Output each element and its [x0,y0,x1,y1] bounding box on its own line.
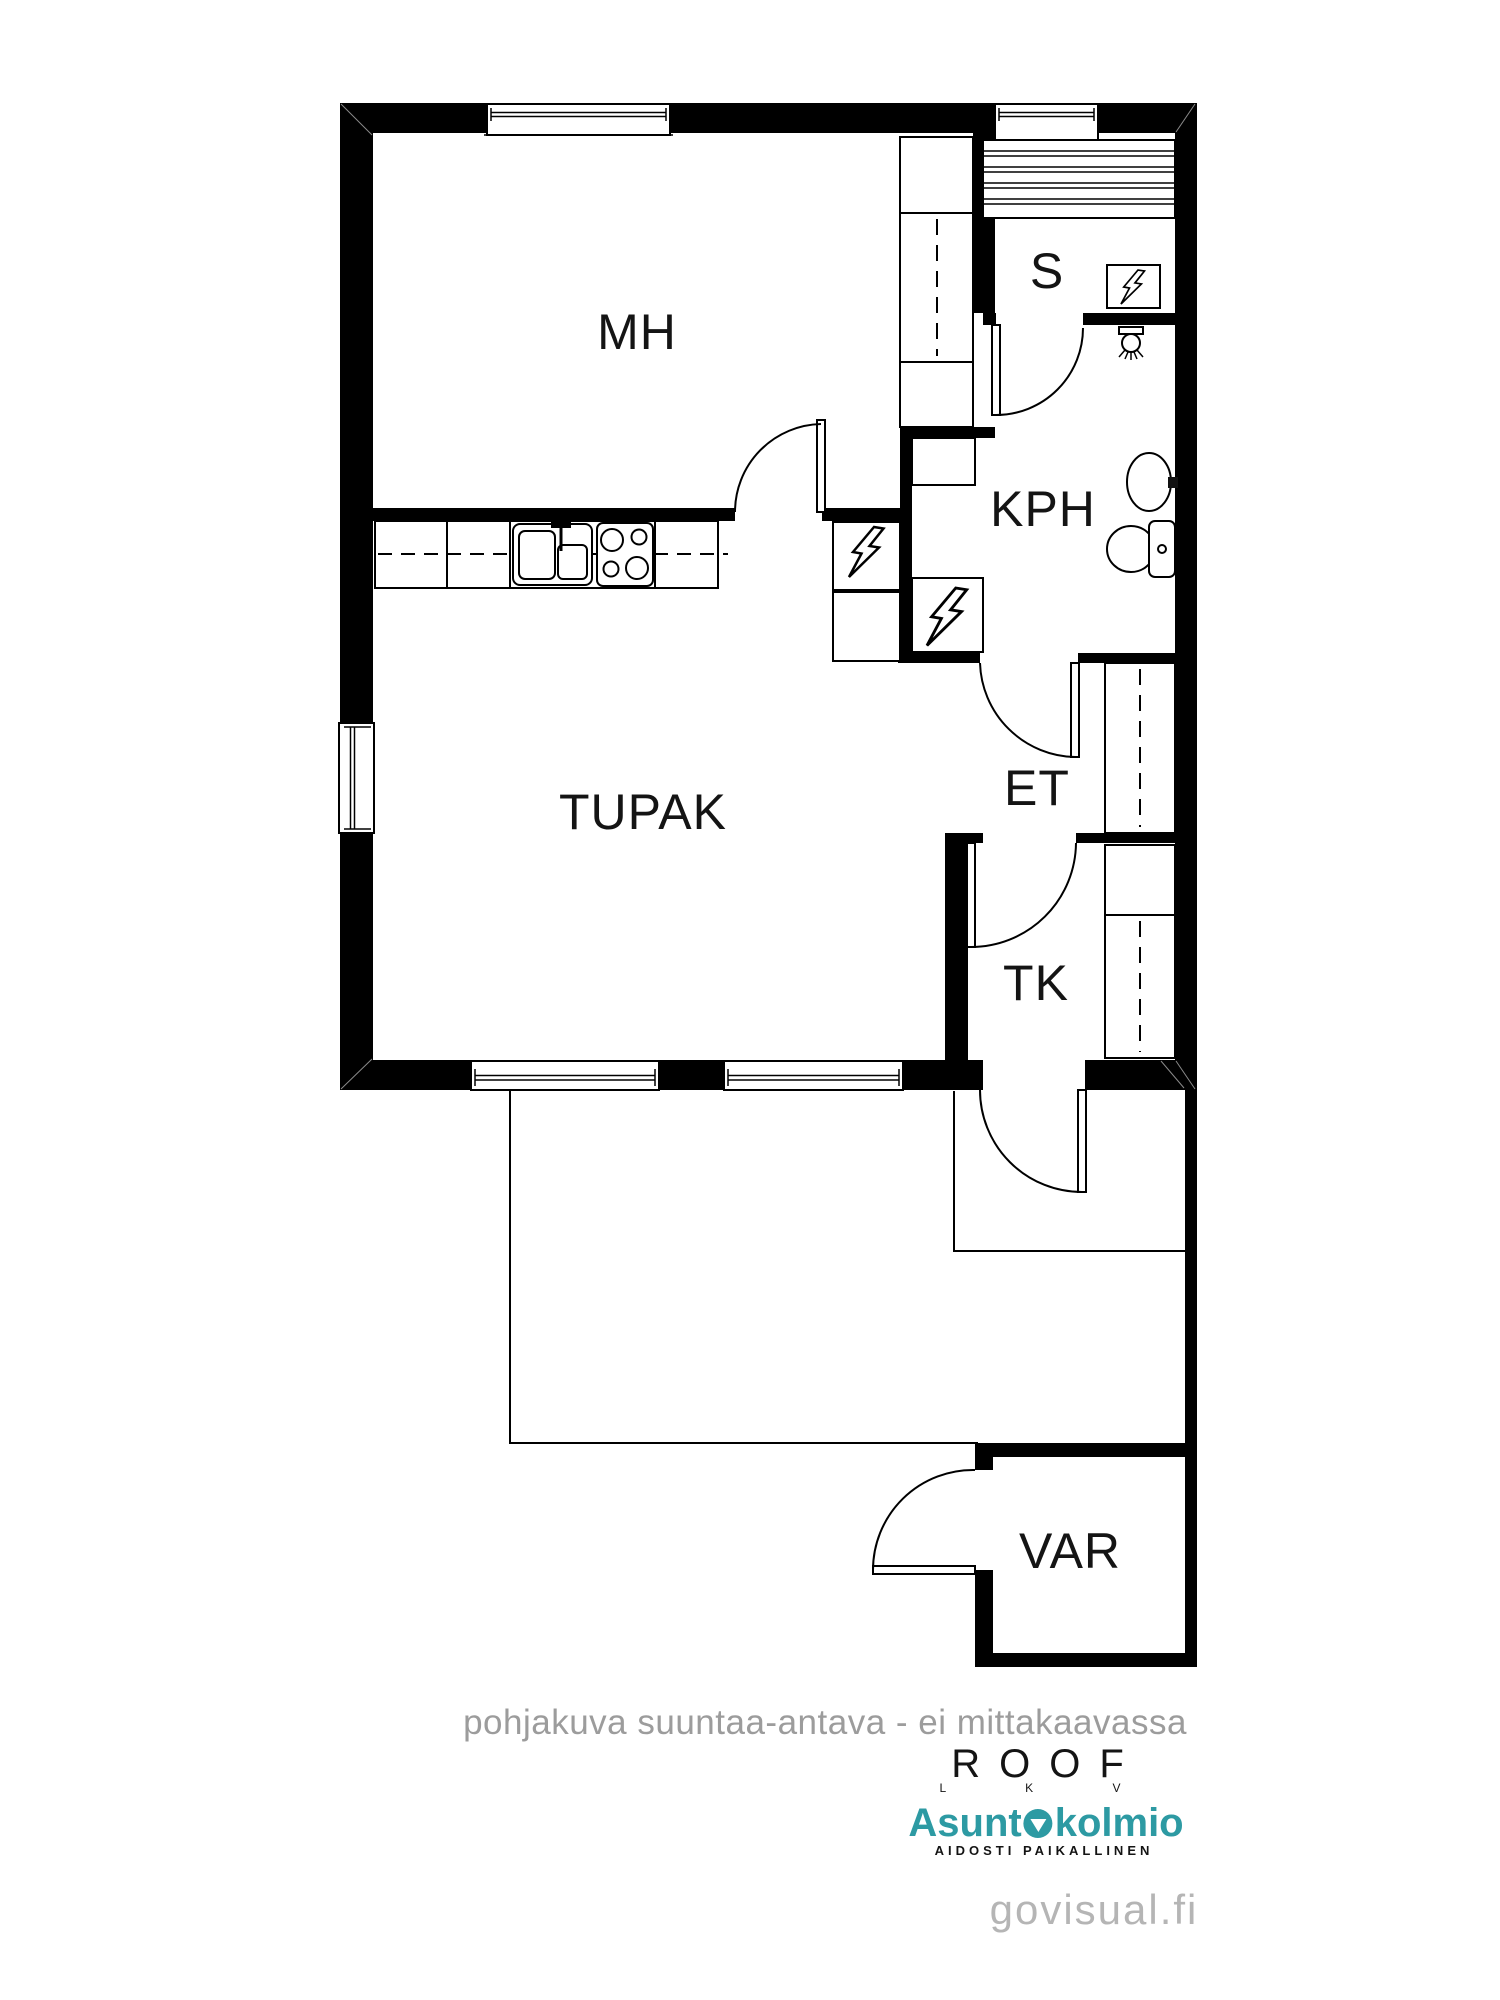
bottom-wall-a [340,1060,471,1090]
window-bottom-2 [724,1061,903,1090]
porch-outline [954,1091,1185,1251]
door-tk-exterior [980,1090,1086,1192]
room-label-sauna: S [1030,243,1064,299]
corner-miters [341,104,1195,1089]
window-mh-top [484,104,673,135]
washbasin-icon [1127,453,1178,511]
door-sauna [992,325,1083,415]
mh-closet-1 [900,137,973,213]
right-wall-upper [1175,103,1197,1090]
mh-tupak-wall [373,508,735,521]
sauna-kph-wall [1083,313,1175,325]
asuntokolmio-text-pre: Asunt [908,1801,1021,1846]
kitchen-counter [375,521,728,588]
shower-icon [1119,327,1143,360]
terrace-outline [510,1091,978,1443]
left-wall-lower [340,833,373,1090]
room-label-mh: MH [597,304,677,360]
room-label-kph: KPH [990,481,1096,537]
window-sauna-top [995,104,1098,141]
tupak-kph-wall [900,428,912,663]
electrical-symbols [396,270,1144,646]
asuntokolmio-tagline: AIDOSTI PAIKALLINEN [935,1843,1154,1858]
door-kph [980,663,1079,757]
tk-left-wall [945,833,968,1090]
toilet-icon [1107,521,1175,577]
kitchen-sink-icon [513,522,592,585]
left-wall-upper [340,103,373,725]
govisual-watermark: govisual.fi [990,1886,1199,1934]
door-mh [735,420,825,512]
right-wall-lower [1185,1090,1197,1667]
room-label-var: VAR [1019,1523,1121,1579]
stove-icon [597,523,653,586]
var-left-wall-upper [975,1457,993,1470]
door-var [873,1470,975,1574]
tupak-cabinet [833,592,900,661]
kph-cabinet [912,438,975,485]
sauna-door-stub [983,313,996,325]
room-labels: MH TUPAK S KPH ET TK VAR [559,243,1121,1579]
room-label-et: ET [1004,760,1070,816]
mh-tupak-wall-right [822,508,902,521]
triangle-circle-icon [1024,1809,1053,1838]
roof-logo-lkv: L K V [940,1781,1159,1795]
floorplan-drawing: MH TUPAK S KPH ET TK VAR [0,0,1500,2000]
room-label-tk: TK [1003,955,1069,1011]
door-et-tk [967,843,1076,947]
window-bottom-1 [471,1061,659,1090]
kph-bottom-wall-right [1078,653,1175,663]
bottom-wall-b [659,1060,724,1090]
kph-bottom-wall-left [898,653,980,663]
mh-closet-3 [900,362,973,427]
room-label-tupak: TUPAK [559,784,727,840]
var-bottom-wall [975,1653,1197,1667]
walls [340,103,1197,1667]
asuntokolmio-logo: Asuntkolmio [908,1801,1183,1846]
var-left-wall-lower [975,1570,993,1653]
floorplan-page: MH TUPAK S KPH ET TK VAR pohjakuva suunt… [0,0,1500,2000]
window-left [339,723,374,833]
mh-closet-2 [900,213,973,362]
tk-closet-1 [1105,845,1175,915]
bottom-wall-c [903,1060,983,1090]
mh-closet-bottom-wall [900,427,995,438]
cabinets [833,137,1175,1058]
disclaimer-text: pohjakuva suuntaa-antava - ei mittakaava… [463,1703,1187,1743]
asuntokolmio-text-post: kolmio [1055,1801,1184,1846]
et-tk-wall-right [1076,833,1175,843]
sauna-benches [983,140,1175,218]
bathroom-fixtures [1107,327,1178,577]
var-top-wall [975,1443,1185,1457]
